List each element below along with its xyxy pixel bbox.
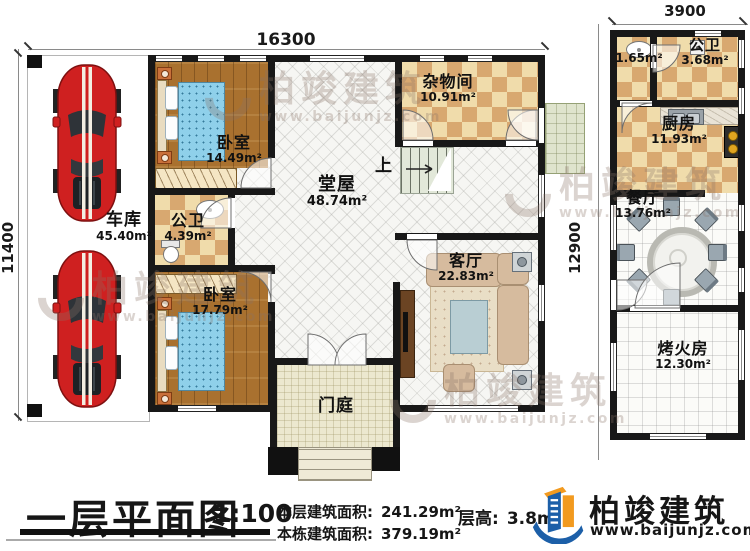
room-label-garage: 车库 45.40m²: [83, 212, 165, 242]
room-label-annex-bath: 公卫 3.68m²: [680, 38, 730, 66]
door-arcs-layer: [0, 0, 750, 551]
room-label-hall: 堂屋 48.74m²: [299, 176, 375, 209]
brand-logo-icon: [531, 484, 587, 544]
stairs-direction-arrow: [406, 165, 432, 173]
title-underline: [20, 529, 270, 535]
room-label-dining: 餐厅 13.76m²: [612, 190, 674, 219]
door-arc: [403, 110, 433, 140]
room-label-porch: 门庭: [308, 398, 364, 416]
door-arc: [308, 334, 339, 365]
room-label-fire-room: 烤火房 12.30m²: [645, 341, 721, 370]
door-arc: [335, 334, 366, 365]
plan-title: 一层平面图: [26, 487, 241, 545]
room-label-bedroom2: 卧室 17.79m²: [188, 287, 252, 316]
brand-url: www.baijunjz.com: [590, 521, 750, 539]
floor-area-stat: 本层建筑面积:241.29m²: [277, 501, 461, 522]
door-arc: [635, 263, 680, 308]
door-arc: [407, 240, 437, 270]
room-label-kitchen: 厨房 11.93m²: [644, 116, 714, 145]
room-label-storage: 杂物间 10.91m²: [410, 74, 486, 103]
room-label-bathroom1: 公卫 4.39m²: [156, 213, 220, 242]
room-label-annex-wash: 1.65m²: [616, 52, 662, 65]
floor-plan-canvas: 16300 3900 11400 12900 上: [0, 0, 750, 551]
total-area-stat: 本栋建筑面积:379.19m²: [277, 523, 461, 544]
title-underline-thin: [6, 539, 276, 541]
room-label-living: 客厅 22.83m²: [434, 253, 498, 282]
room-label-bedroom1: 卧室 14.49m²: [202, 135, 266, 164]
